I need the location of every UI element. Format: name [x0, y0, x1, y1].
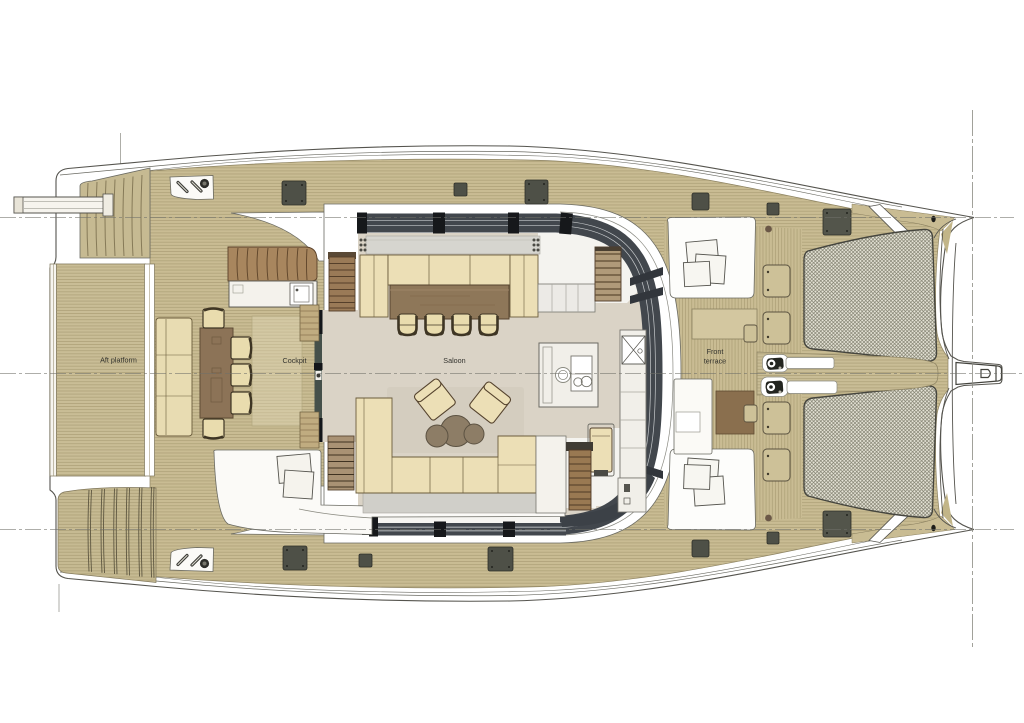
svg-text:terrace: terrace: [704, 357, 726, 366]
svg-text:Cockpit: Cockpit: [283, 356, 307, 365]
svg-text:Front: Front: [707, 347, 724, 356]
svg-text:Saloon: Saloon: [443, 356, 465, 365]
svg-text:Aft platform: Aft platform: [100, 356, 137, 365]
